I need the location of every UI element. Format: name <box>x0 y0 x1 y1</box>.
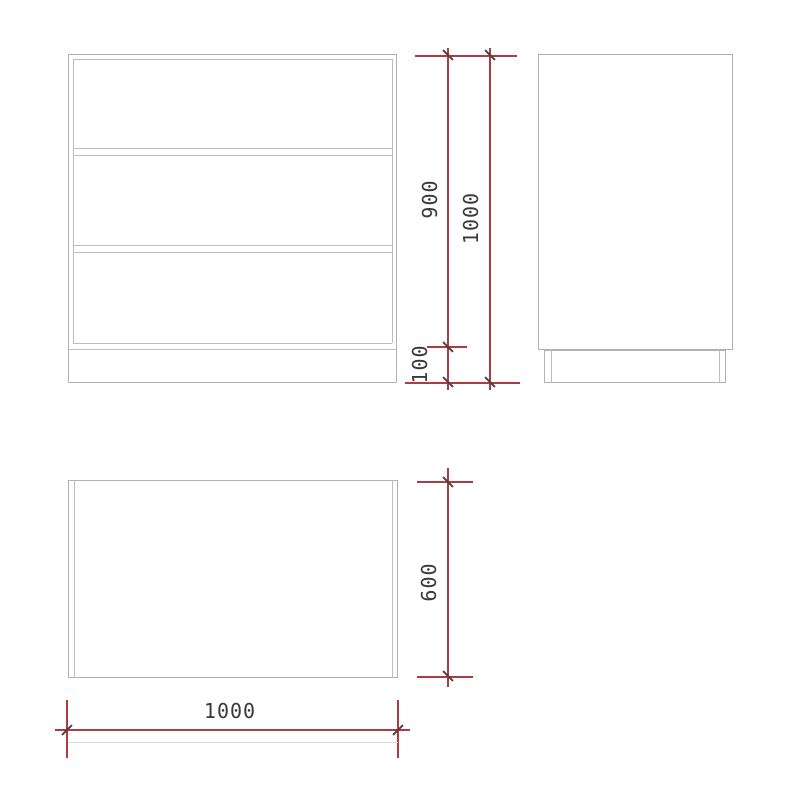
front-plinth-top-line <box>68 349 397 350</box>
top-inner-right-line <box>392 480 393 678</box>
front-inner-right-line <box>392 59 393 343</box>
top-inner-left-line <box>74 480 75 678</box>
ghost-line <box>68 742 398 743</box>
dimension-label-depth: 600 <box>417 562 441 601</box>
depth-extension-bottom <box>417 676 473 678</box>
top-outline <box>68 480 398 678</box>
front-drawer-divider-2a <box>73 245 392 246</box>
dimension-label-body-height: 900 <box>418 179 442 218</box>
side-plinth-outline <box>544 350 726 383</box>
dimension-line-900-100 <box>447 48 449 390</box>
dimension-line-600 <box>447 468 449 687</box>
front-inner-top-line <box>73 59 392 60</box>
front-inner-left-line <box>73 59 74 343</box>
front-drawer-divider-1a <box>73 148 392 149</box>
drawing-canvas: 900 1000 100 600 1000 <box>0 0 800 800</box>
height-extension-top <box>415 55 517 57</box>
dimension-label-width: 1000 <box>204 699 256 723</box>
front-inner-bottom-line <box>73 343 392 344</box>
front-drawer-divider-1b <box>73 155 392 156</box>
dimension-line-1000-vertical <box>489 48 491 390</box>
front-outline <box>68 54 397 383</box>
dimension-line-1000-horizontal <box>55 729 410 731</box>
front-drawer-divider-2b <box>73 252 392 253</box>
dimension-label-total-height: 1000 <box>459 192 483 244</box>
side-outline <box>538 54 733 350</box>
dimension-label-plinth-height: 100 <box>408 344 432 383</box>
side-plinth-inner-left-line <box>551 350 552 383</box>
side-plinth-inner-right-line <box>719 350 720 383</box>
